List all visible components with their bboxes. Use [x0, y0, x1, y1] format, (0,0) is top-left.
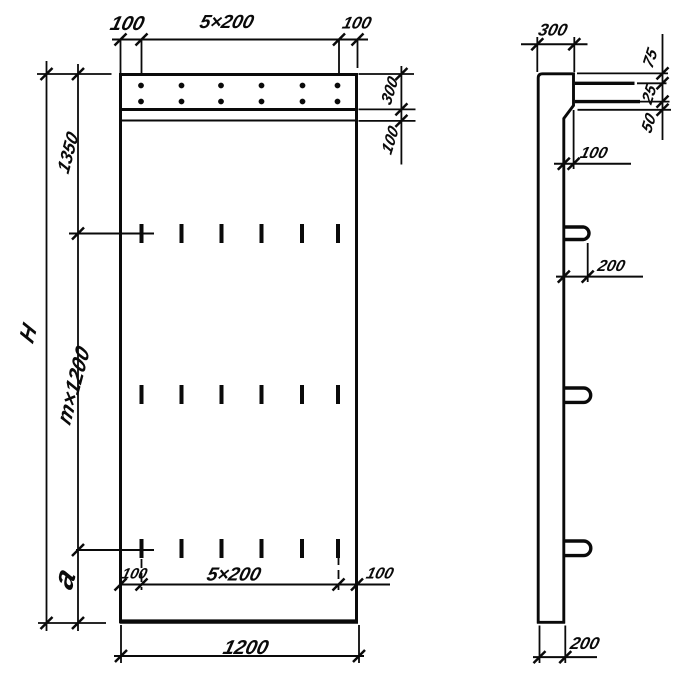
svg-text:100: 100	[379, 123, 402, 158]
svg-text:H: H	[15, 319, 42, 347]
svg-text:300: 300	[536, 20, 570, 40]
svg-text:100: 100	[340, 13, 374, 33]
svg-text:5×200: 5×200	[197, 12, 256, 33]
svg-text:a: a	[47, 562, 82, 595]
svg-text:1200: 1200	[221, 637, 272, 659]
svg-text:75: 75	[640, 44, 661, 71]
svg-text:50: 50	[639, 110, 660, 136]
svg-text:200: 200	[595, 257, 627, 275]
svg-text:100: 100	[364, 565, 395, 583]
svg-text:100: 100	[120, 566, 150, 583]
svg-text:200: 200	[567, 633, 602, 653]
svg-text:m×1200: m×1200	[53, 342, 94, 429]
svg-text:5×200: 5×200	[204, 565, 263, 586]
svg-text:100: 100	[108, 13, 147, 35]
svg-text:25: 25	[639, 80, 660, 108]
svg-text:100: 100	[578, 144, 609, 162]
